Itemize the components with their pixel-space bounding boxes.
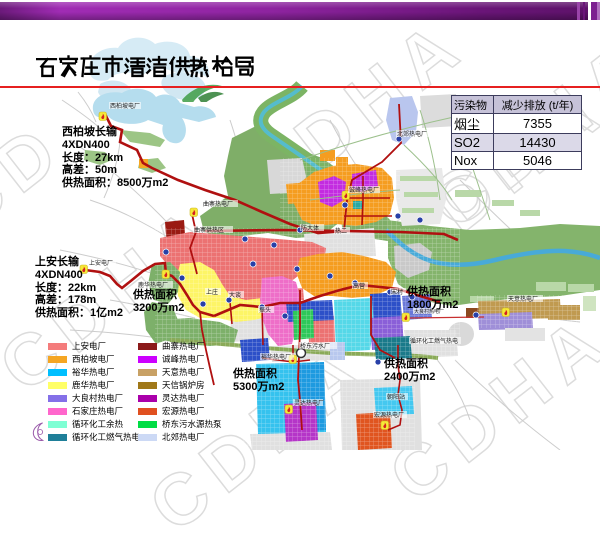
svg-text:鹿华热电厂: 鹿华热电厂	[138, 281, 168, 289]
svg-text:诚峰热电厂: 诚峰热电厂	[349, 186, 379, 194]
svg-text:天意热电厂: 天意热电厂	[508, 295, 538, 303]
svg-text:灵达热电厂: 灵达热电厂	[294, 399, 324, 407]
svg-text:循环化工燃气热电: 循环化工燃气热电	[410, 337, 458, 345]
svg-text:北郊热电厂: 北郊热电厂	[397, 130, 427, 138]
svg-text:防大体: 防大体	[301, 224, 319, 232]
svg-text:高营: 高营	[353, 282, 365, 290]
svg-text:桥东污水厂: 桥东污水厂	[300, 342, 330, 350]
svg-text:振头: 振头	[259, 306, 271, 314]
svg-text:上庄: 上庄	[206, 288, 218, 296]
svg-text:西柏坡电厂: 西柏坡电厂	[110, 102, 140, 110]
svg-text:曲寨热电厂: 曲寨热电厂	[203, 200, 233, 208]
svg-text:朝阳站: 朝阳站	[387, 393, 405, 401]
svg-text:热二: 热二	[335, 227, 347, 235]
svg-text:曲寨供热区: 曲寨供热区	[194, 226, 224, 234]
svg-text:大谈: 大谈	[229, 291, 241, 299]
svg-text:宏源热电厂: 宏源热电厂	[374, 411, 404, 419]
svg-text:宋村: 宋村	[391, 288, 403, 296]
svg-text:裕华热电厂: 裕华热电厂	[261, 353, 291, 361]
